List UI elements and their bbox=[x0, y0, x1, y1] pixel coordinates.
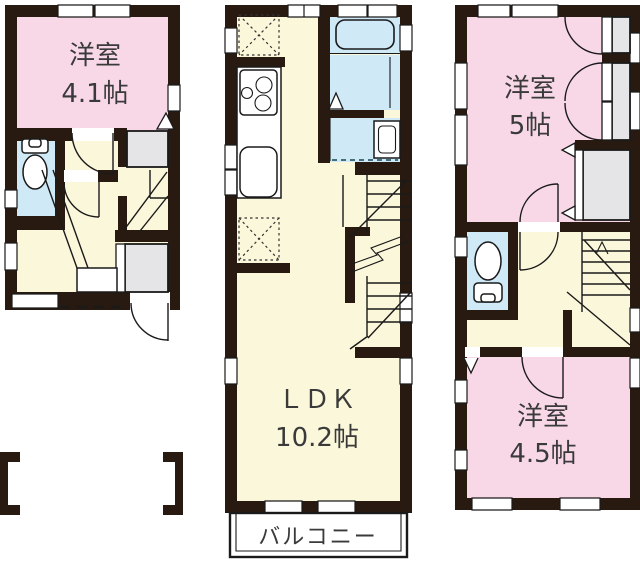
ldk-size-label: 10.2帖 bbox=[275, 423, 359, 453]
toilet-icon-1f bbox=[22, 139, 48, 189]
bedroom-45-label: 洋室 bbox=[517, 402, 569, 432]
toilet-icon-3f bbox=[474, 242, 502, 302]
car-space-brackets bbox=[0, 452, 183, 515]
third-floor-block: 洋室 5帖 洋室 4.5帖 bbox=[455, 5, 640, 510]
bedroom-41-size-label: 4.1帖 bbox=[61, 79, 128, 109]
left-bracket-icon bbox=[0, 452, 20, 515]
bedroom-41-label: 洋室 bbox=[69, 41, 121, 71]
bedroom-45-size-label: 4.5帖 bbox=[509, 439, 576, 469]
second-floor-block: ＬＤＫ 10.2帖 bbox=[225, 5, 412, 513]
kitchen-sink-icon bbox=[240, 147, 277, 197]
closet-3f-lower bbox=[583, 150, 630, 220]
ldk-label: ＬＤＫ bbox=[278, 385, 356, 415]
closet-3f-top-leaf bbox=[602, 17, 612, 53]
closet-3f-lower-leaf bbox=[575, 150, 583, 220]
balcony-label: バルコニー bbox=[258, 525, 378, 550]
closet-1f-top bbox=[127, 131, 168, 167]
bedroom-5-size-label: 5帖 bbox=[509, 111, 552, 141]
closet-3f-double-leaf-b bbox=[602, 102, 612, 140]
right-bracket-icon bbox=[163, 452, 183, 515]
closet-1f-bottom bbox=[125, 244, 168, 292]
closet-3f-double bbox=[612, 63, 630, 140]
floor-plan-drawing: ＬＤＫ 10.2帖 バルコニー bbox=[0, 0, 640, 569]
entrance-step bbox=[77, 268, 117, 292]
balcony: バルコニー bbox=[230, 513, 407, 557]
closet-3f-top bbox=[612, 17, 630, 53]
bedroom-5-label: 洋室 bbox=[504, 74, 556, 104]
stove-icon bbox=[240, 70, 277, 115]
washing-machine-icon bbox=[374, 121, 400, 158]
closet-3f-double-leaf-a bbox=[602, 63, 612, 101]
bedroom-4-1 bbox=[17, 17, 168, 131]
floor-plan: ＬＤＫ 10.2帖 バルコニー bbox=[0, 0, 640, 569]
